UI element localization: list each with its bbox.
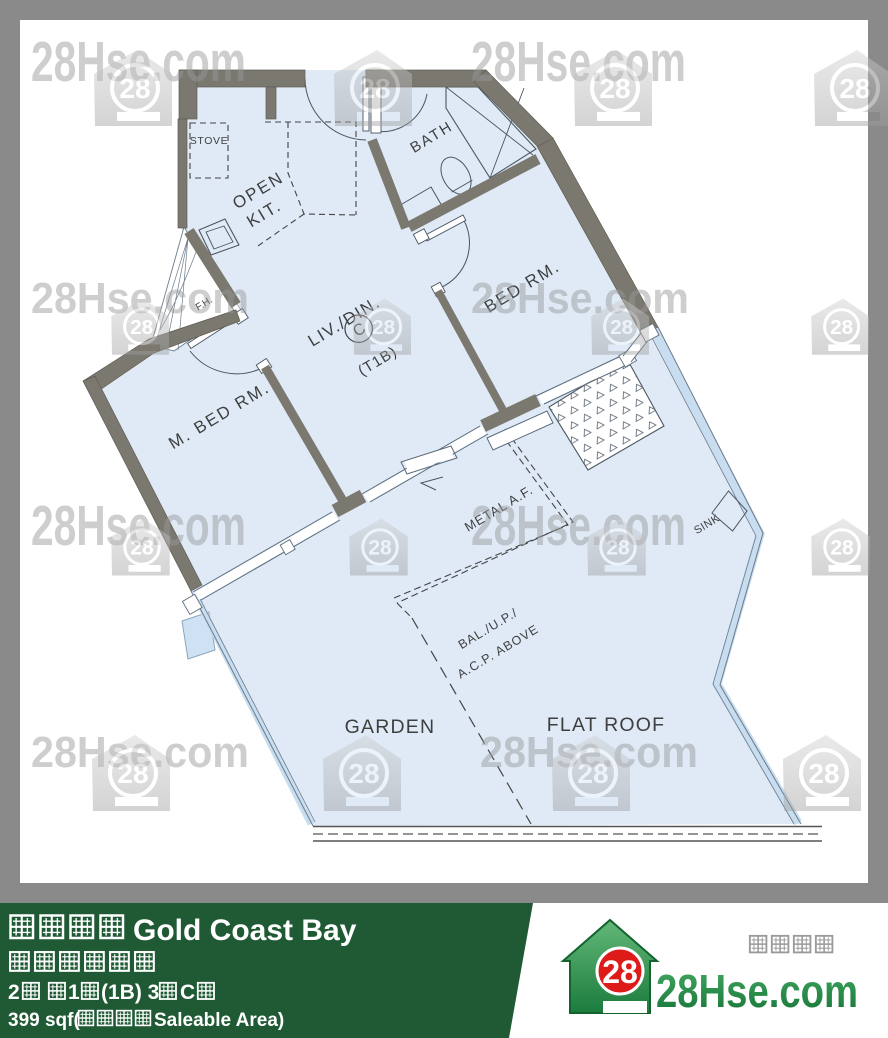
svg-text:(1B) 3: (1B) 3 <box>101 981 159 1004</box>
svg-text:GARDEN: GARDEN <box>345 716 436 738</box>
svg-text:399 sqf(: 399 sqf( <box>8 1010 80 1031</box>
svg-text:STOVE: STOVE <box>190 135 228 147</box>
svg-text:C: C <box>180 981 195 1004</box>
svg-text:28: 28 <box>602 954 638 990</box>
svg-text:2: 2 <box>8 981 20 1004</box>
svg-text:28Hse.com: 28Hse.com <box>471 494 686 558</box>
svg-text:1: 1 <box>68 981 80 1004</box>
svg-text:Gold Coast Bay: Gold Coast Bay <box>133 914 357 947</box>
svg-text:28Hse.com: 28Hse.com <box>656 965 858 1017</box>
svg-text:Saleable Area): Saleable Area) <box>154 1010 284 1031</box>
svg-text:28Hse.com: 28Hse.com <box>471 274 689 323</box>
